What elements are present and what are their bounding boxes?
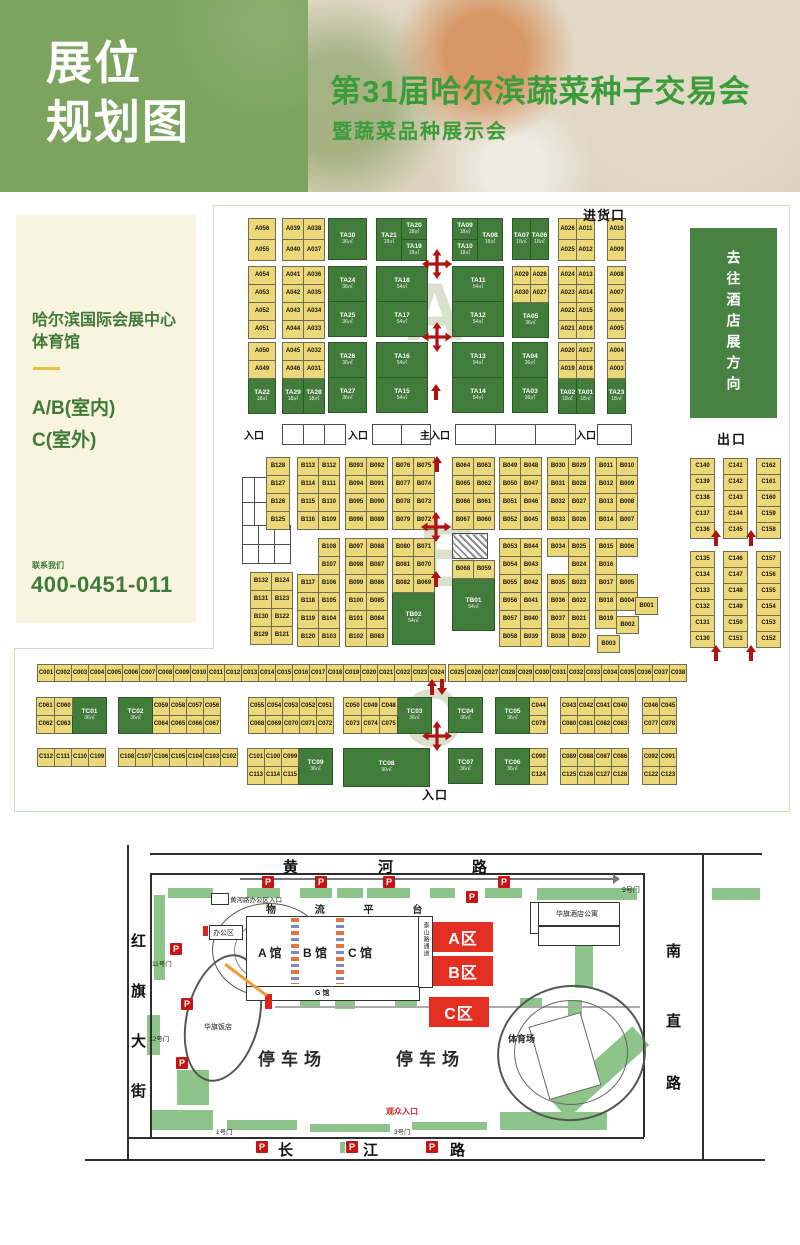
booth-B029: B029 [569,458,590,476]
booth-B098: B098 [346,557,367,575]
booth-C113: C113 [248,767,265,785]
booth-B096: B096 [346,512,367,530]
booth-C139: C139 [691,475,715,491]
booth-C078: C078 [660,716,677,734]
booth-C154: C154 [757,600,781,616]
booth-C041: C041 [595,698,612,716]
booth-C135: C135 [691,552,715,568]
booth-TB02: TB0254㎡ [393,593,435,645]
booth-TA11: TA1154㎡ [453,267,504,302]
booth-block: TC0436㎡ [448,697,483,733]
parking-icon: P [256,1141,268,1153]
booth-block: C162C161C160C159C158 [756,458,781,539]
booth-block: C140C139C138C137C136 [690,458,715,539]
booth-C052: C052 [300,698,317,716]
booth-A034: A034 [304,303,325,321]
booth-block: C061C060TC0136㎡C062C063 [36,697,107,734]
booth-block: C108C107C106C105C104C103C102 [118,748,238,767]
booth-C083: C083 [612,716,629,734]
booth-C015: C015 [276,665,293,682]
booth-B132: B132 [251,573,272,591]
booth-TC05: TC0536㎡ [496,698,530,734]
booth-B119: B119 [298,611,319,629]
booth-B042: B042 [521,575,542,593]
booth-B100: B100 [346,593,367,611]
booth-A041: A041 [283,267,304,285]
booth-block: B053B044B054B043B055B042B056B041B057B040… [499,538,542,647]
booth-block: C112C111C110C109 [37,748,106,767]
booth-B038: B038 [548,629,569,647]
booth-A031: A031 [304,361,325,379]
booth-B082: B082 [393,575,414,593]
booth-A015: A015 [577,303,595,321]
booth-C037: C037 [653,665,670,682]
taishan-label: 泰山路通道 [421,922,430,957]
booth-TA05: TA0536㎡ [513,303,549,338]
floorplan-poster: 展位 规划图 第31届哈尔滨蔬菜种子交易会 暨蔬菜品种展示会 哈尔滨国际会展中心… [0,0,800,1245]
booth-C144: C144 [724,507,748,523]
booth-C057: C057 [187,698,204,716]
empty-cell [548,557,569,575]
booth-block: TA1854㎡TA1754㎡ [376,266,428,337]
booth-C110: C110 [72,749,89,767]
booth-A044: A044 [283,321,304,339]
booth-B092: B092 [367,458,388,476]
booth-B103: B103 [319,629,340,647]
booth-TA30: TA3036㎡ [329,219,367,260]
plan-border [14,648,15,812]
booth-B104: B104 [319,611,340,629]
up-arrow-icon [746,645,756,666]
hotel-apt-label: 华旗酒店公寓 [556,909,598,919]
booth-C010: C010 [191,665,208,682]
booth-C073: C073 [344,716,362,734]
booth-block: C089C088C087C086C125C126C127C128 [560,748,629,785]
empty-cell [617,557,638,575]
route-line [240,878,615,880]
booth-A016: A016 [577,321,595,339]
zone-b-marker: B区 [433,956,493,986]
booth-C036: C036 [636,665,653,682]
booth-B017: B017 [596,575,617,593]
hall-g-building [246,986,420,1001]
booth-B047: B047 [521,476,542,494]
booth-B076: B076 [393,458,414,476]
booth-B081: B081 [393,557,414,575]
booth-B053: B053 [500,539,521,557]
empty-cell [298,557,319,575]
booth-TA17: TA1754㎡ [377,302,428,337]
venue-name: 哈尔滨国际会展中心 体育馆 [32,310,176,355]
booth-B026: B026 [569,512,590,530]
booth-B039: B039 [521,629,542,647]
hatched-area [453,534,488,559]
entrance-box [304,425,325,445]
booth-C140: C140 [691,459,715,475]
entrance-label: 入口 [244,427,264,442]
booth-B014: B014 [596,512,617,530]
booth-block: TA0718㎡TA0618㎡ [512,218,549,260]
booth-A032: A032 [304,343,325,361]
booth-C161: C161 [757,475,781,491]
gate-9-label: 9号门 [622,885,640,895]
booth-block: B003 [597,635,620,653]
booth-B045: B045 [521,512,542,530]
booth-C101: C101 [248,749,265,767]
booth-B107: B107 [319,557,340,575]
road-name: 街 [131,1080,146,1101]
booth-C020: C020 [361,665,378,682]
booth-B078: B078 [393,494,414,512]
booth-C149: C149 [724,600,748,616]
booth-B105: B105 [319,593,340,611]
booth-A054: A054 [249,267,276,285]
up-arrow-icon [711,645,721,666]
booth-C100: C100 [265,749,282,767]
booth-TA04: TA0436㎡ [513,343,548,378]
booth-B003: B003 [598,636,620,653]
booth-block: C046C045C077C078 [642,697,677,734]
booth-B124: B124 [272,573,293,591]
booth-B080: B080 [393,539,414,557]
booth-B033: B033 [548,512,569,530]
booth-C055: C055 [249,698,266,716]
booth-C007: C007 [140,665,157,682]
booth-C053: C053 [283,698,300,716]
office-entry-box [211,893,229,905]
booth-C025: C025 [449,665,466,682]
booth-C122: C122 [643,767,660,785]
route-arrowhead [613,874,620,884]
booth-C034: C034 [602,665,619,682]
booth-A020: A020 [559,343,577,361]
cross-arrows-icon [422,249,452,284]
booth-B118: B118 [298,593,319,611]
booth-B122: B122 [272,609,293,627]
booth-B036: B036 [548,593,569,611]
booth-B001: B001 [636,598,658,615]
booth-B106: B106 [319,575,340,593]
booth-A040: A040 [283,240,304,261]
booth-B061: B061 [474,494,495,512]
booth-B074: B074 [414,476,435,494]
entrance-box [496,425,536,445]
booth-B085: B085 [367,593,388,611]
booth-B008: B008 [617,494,638,512]
plan-border [789,205,790,812]
booth-C016: C016 [293,665,310,682]
booth-C087: C087 [595,749,612,767]
booth-B063: B063 [474,458,495,476]
booth-B041: B041 [521,593,542,611]
booth-block: C146C147C148C149C150C151 [723,551,748,648]
booth-block: B108B107B117B106B118B105B119B104B120B103 [297,538,340,647]
booth-C068: C068 [249,716,266,734]
booth-C075: C075 [380,716,398,734]
booth-C004: C004 [89,665,106,682]
booth-C153: C153 [757,616,781,632]
booth-A035: A035 [304,285,325,303]
up-arrow-icon [746,530,756,551]
booth-B002: B002 [617,617,639,634]
booth-block: C101C100C099TC0936㎡C113C114C115 [247,748,333,785]
booth-C033: C033 [585,665,602,682]
road-name: 路 [450,1139,465,1160]
booth-B010: B010 [617,458,638,476]
booth-C049: C049 [362,698,380,716]
booth-C092: C092 [643,749,660,767]
booth-B130: B130 [251,609,272,627]
booth-B120: B120 [298,629,319,647]
poster-badge: 展位 规划图 [46,34,190,152]
booth-C142: C142 [724,475,748,491]
booth-C035: C035 [619,665,636,682]
booth-C114: C114 [265,767,282,785]
booth-A045: A045 [283,343,304,361]
booth-C070: C070 [283,716,300,734]
booth-A013: A013 [577,267,595,285]
booth-TA07: TA0718㎡ [513,219,531,260]
booth-block: B128B127B126B125 [266,457,290,530]
booth-C091: C091 [660,749,677,767]
booth-A042: A042 [283,285,304,303]
booth-TA02: TA0218㎡ [559,379,577,414]
booth-C141: C141 [724,459,748,475]
booth-B128: B128 [267,458,290,476]
booth-C058: C058 [170,698,187,716]
booth-TC07: TC0736㎡ [449,749,483,784]
booth-block: A054A053A052A051 [248,266,276,339]
booth-block: TA3036㎡ [328,218,367,260]
booth-A005: A005 [608,321,626,339]
booth-C138: C138 [691,491,715,507]
booth-B073: B073 [414,494,435,512]
booth-B066: B066 [453,494,474,512]
booth-C059: C059 [153,698,170,716]
booth-block: C043C042C041C040C080C081C082C083 [560,697,629,734]
booth-block: A050A049TA2218㎡ [248,342,276,414]
booth-TA01: TA0118㎡ [577,379,595,414]
entrance-box [598,425,632,445]
road-name: 大 [131,1030,146,1051]
booth-B102: B102 [346,629,367,647]
road-name: 红 [131,930,146,951]
booth-block: C025C026C027C028C029C030C031C032C033C034… [448,664,687,682]
booth-A051: A051 [249,321,276,339]
to-hotel-text: 去往酒店展方向 [724,250,744,397]
booth-B110: B110 [319,494,340,512]
nanzhi-road-line [643,873,645,1137]
booth-C150: C150 [724,616,748,632]
booth-C001: C001 [38,665,55,682]
booth-C031: C031 [551,665,568,682]
gate-3-label: 3号门 [394,1126,411,1136]
zone-c-label: C(室外) [32,425,96,452]
event-title: 第31届哈尔滨蔬菜种子交易会 [330,66,750,111]
booth-C072: C072 [317,716,334,734]
booth-A018: A018 [577,361,595,379]
booth-B037: B037 [548,611,569,629]
plan-border [14,648,214,649]
booth-block: C157C156C155C154C153C152 [756,551,781,648]
booth-A055: A055 [249,240,276,261]
booth-A043: A043 [283,303,304,321]
booth-C111: C111 [55,749,72,767]
booth-C017: C017 [310,665,327,682]
booth-B126: B126 [267,494,290,512]
booth-B114: B114 [298,476,319,494]
booth-C157: C157 [757,552,781,568]
hall-divider [336,918,344,984]
booth-A037: A037 [304,240,325,261]
booth-B034: B034 [548,539,569,557]
booth-C143: C143 [724,491,748,507]
booth-block: C135C134C133C132C131C130 [690,551,715,648]
booth-C134: C134 [691,568,715,584]
booth-block: B097B088B098B087B099B086B100B085B101B084… [345,538,388,647]
booth-A004: A004 [608,343,626,361]
changjiang-road-line [127,1137,644,1139]
booth-TA25: TA2536㎡ [329,302,367,337]
booth-B077: B077 [393,476,414,494]
booth-block: A029A028A030A027TA0536㎡ [512,266,549,338]
booth-B022: B022 [569,593,590,611]
booth-block: A045A032A046A031TA2918㎡TA2818㎡ [282,342,325,414]
booth-C003: C003 [72,665,89,682]
booth-B062: B062 [474,476,495,494]
booth-B123: B123 [272,591,293,609]
booth-A007: A007 [608,285,626,303]
event-subtitle: 暨蔬菜品种展示会 [332,115,508,144]
booth-C081: C081 [578,716,595,734]
gate-12-label: 12号门 [149,1033,169,1043]
booth-C147: C147 [724,568,748,584]
booth-C009: C009 [174,665,191,682]
hotel-label: 华旗饭店 [204,1022,232,1032]
booth-block: TA1154㎡TA1254㎡ [452,266,504,337]
booth-block: A026A011A025A012 [558,218,595,261]
booth-B088: B088 [367,539,388,557]
booth-B131: B131 [251,591,272,609]
booth-block: B068B059TB0154㎡ [452,560,495,631]
stadium-label: 体育场 [508,1032,535,1045]
booth-block: A008A007A006A005 [607,266,626,339]
booth-B083: B083 [367,629,388,647]
road-name: 路 [472,856,487,877]
booth-C008: C008 [157,665,174,682]
booth-C043: C043 [561,698,578,716]
booth-A014: A014 [577,285,595,303]
hall-b-label: B 馆 [303,944,327,961]
booth-B052: B052 [500,512,521,530]
booth-TA28: TA2818㎡ [304,379,325,414]
booth-C127: C127 [595,767,612,785]
booth-C032: C032 [568,665,585,682]
booth-block: B080B071B081B070B082B069TB0254㎡ [392,538,435,645]
booth-B018: B018 [596,593,617,611]
booth-TA24: TA2436㎡ [329,267,367,302]
parking-icon: P [176,1057,188,1069]
parking-icon: P [315,876,327,888]
booth-B019: B019 [596,611,617,629]
booth-B091: B091 [367,476,388,494]
booth-C054: C054 [266,698,283,716]
booth-C011: C011 [208,665,225,682]
booth-A030: A030 [513,285,531,303]
booth-block: B002 [616,616,639,634]
booth-B113: B113 [298,458,319,476]
hongqi-street-line [150,873,152,1137]
booth-B043: B043 [521,557,542,575]
booth-C115: C115 [282,767,299,785]
hall-c-label: C 馆 [348,944,372,961]
booth-C027: C027 [483,665,500,682]
booth-C082: C082 [595,716,612,734]
booth-C026: C026 [466,665,483,682]
booth-B079: B079 [393,512,414,530]
booth-C099: C099 [282,749,299,767]
entrance-label: 入口 [422,786,448,803]
booth-block: TA2636㎡TA2736㎡ [328,342,367,413]
booth-A006: A006 [608,303,626,321]
booth-block: B093B092B094B091B095B090B096B089 [345,457,388,530]
entrance-box [536,425,576,445]
booth-C019: C019 [344,665,361,682]
booth-block: B030B029B031B028B032B027B033B026 [547,457,590,530]
booth-C028: C028 [500,665,517,682]
booth-B027: B027 [569,494,590,512]
huanghe-road-line [150,873,644,875]
booth-A036: A036 [304,267,325,285]
booth-C065: C065 [170,716,187,734]
booth-C050: C050 [344,698,362,716]
booth-C077: C077 [643,716,660,734]
booth-TA27: TA2736㎡ [329,378,367,413]
booth-B051: B051 [500,494,521,512]
plan-border [213,205,214,648]
booth-block: A041A036A042A035A043A034A044A033 [282,266,325,339]
hall-a-label: A 馆 [258,944,282,961]
road-name: 旗 [131,980,146,1001]
up-down-arrows-icon [427,679,447,700]
booth-block: TA1354㎡TA1454㎡ [452,342,504,413]
booth-C048: C048 [380,698,398,716]
booth-B112: B112 [319,458,340,476]
booth-C123: C123 [660,767,677,785]
booth-B013: B013 [596,494,617,512]
zone-c-marker: C区 [429,997,489,1027]
booth-B095: B095 [346,494,367,512]
booth-C042: C042 [578,698,595,716]
booth-A029: A029 [513,267,531,285]
booth-C038: C038 [670,665,687,682]
booth-C106: C106 [153,749,170,767]
plan-border [213,205,790,206]
booth-C108: C108 [119,749,136,767]
up-arrow-icon [711,530,721,551]
booth-B012: B012 [596,476,617,494]
booth-C060: C060 [55,698,73,716]
booth-C125: C125 [561,767,578,785]
booth-B087: B087 [367,557,388,575]
booth-TC06: TC0636㎡ [496,749,530,785]
booth-B020: B020 [569,629,590,647]
booth-C089: C089 [561,749,578,767]
booth-B129: B129 [251,627,272,645]
booth-C066: C066 [187,716,204,734]
booth-B005: B005 [617,575,638,593]
parking-icon: P [498,876,510,888]
